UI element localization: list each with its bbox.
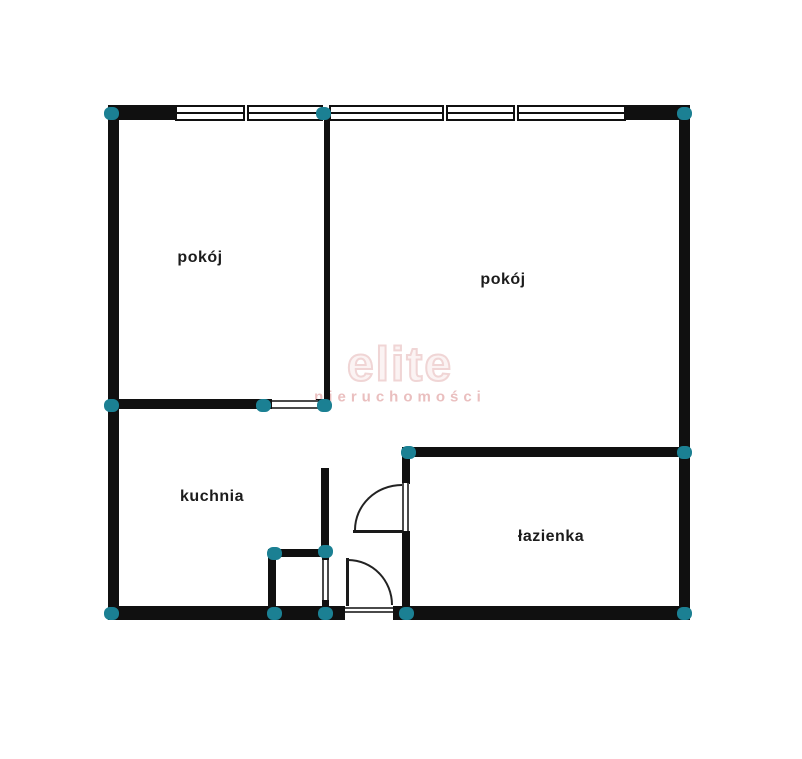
room-label-left: pokój: [177, 249, 222, 267]
window-mullion: [442, 105, 448, 121]
junction-node: [104, 107, 119, 120]
window-midline: [177, 112, 321, 114]
wall-bathroom-top: [402, 447, 690, 457]
wall-bathroom-left-lower: [402, 531, 410, 613]
junction-node: [104, 399, 119, 412]
bathroom-door-frame: [402, 483, 409, 533]
opening-room-kitchen: [272, 400, 318, 409]
junction-node: [318, 545, 333, 558]
junction-node: [317, 399, 332, 412]
wall-hallway-west: [321, 468, 329, 552]
junction-node: [401, 446, 416, 459]
junction-node: [318, 607, 333, 620]
window-mullion: [513, 105, 519, 121]
watermark-subtitle-text: nieruchomości: [314, 389, 486, 406]
junction-node: [316, 107, 331, 120]
junction-node: [256, 399, 271, 412]
room-label-bathroom: łazienka: [518, 528, 584, 546]
junction-node: [399, 607, 414, 620]
floor-plan-canvas: elite nieruchomości: [0, 0, 802, 759]
junction-node: [677, 446, 692, 459]
window-midline: [331, 112, 624, 114]
closet-door-frame: [322, 560, 329, 602]
wall-bottom-right-segment: [393, 606, 690, 620]
wall-bottom-left-segment: [108, 606, 345, 620]
bathroom-door-leaf: [353, 530, 403, 533]
wall-left: [108, 105, 119, 620]
room-label-right: pokój: [480, 271, 525, 289]
junction-node: [677, 107, 692, 120]
entrance-threshold: [345, 607, 393, 613]
wall-room-divider: [324, 118, 330, 404]
entrance-door-swing-arc: [348, 559, 393, 605]
bathroom-door-swing-arc: [354, 484, 402, 530]
window-mullion: [243, 105, 249, 121]
room-label-kitchen: kuchnia: [180, 488, 244, 506]
wall-right: [679, 105, 690, 620]
watermark-brand-text: elite: [347, 338, 453, 393]
junction-node: [267, 547, 282, 560]
junction-node: [267, 607, 282, 620]
wall-kitchen-north-a: [108, 399, 272, 409]
junction-node: [104, 607, 119, 620]
window-right-room: [329, 105, 626, 121]
window-left-room: [175, 105, 323, 121]
junction-node: [677, 607, 692, 620]
